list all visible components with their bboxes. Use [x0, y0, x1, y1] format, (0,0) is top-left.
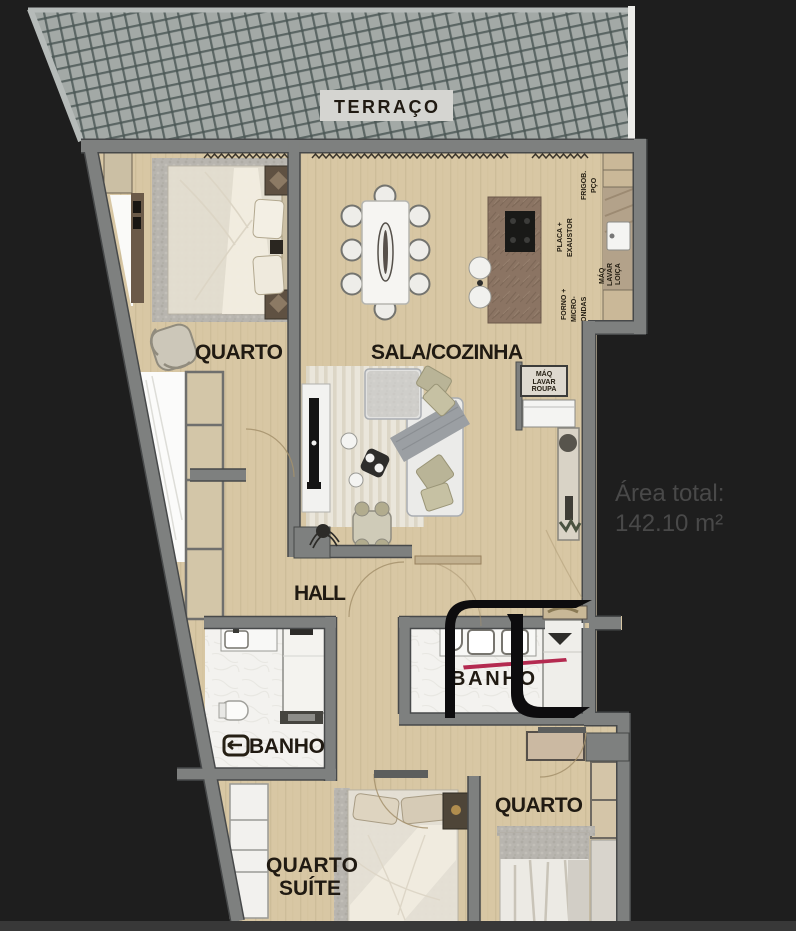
svg-text:MÁQ: MÁQ — [536, 369, 553, 378]
svg-text:ONDAS: ONDAS — [581, 296, 588, 322]
svg-text:FORNO +: FORNO + — [561, 289, 568, 320]
svg-text:ROUPA: ROUPA — [532, 386, 557, 393]
svg-text:LAVAR: LAVAR — [532, 379, 555, 386]
svg-text:MÁQ: MÁQ — [597, 267, 606, 284]
svg-text:QUARTO: QUARTO — [195, 341, 283, 364]
svg-text:LOIÇA: LOIÇA — [615, 263, 622, 285]
svg-text:QUARTO: QUARTO — [495, 794, 583, 817]
svg-text:MICRO-: MICRO- — [571, 296, 578, 322]
svg-text:LAVAR: LAVAR — [607, 263, 614, 286]
svg-text:SUÍTE: SUÍTE — [279, 877, 341, 900]
svg-text:SALA/COZINHA: SALA/COZINHA — [371, 341, 523, 364]
svg-text:FRIGOB.: FRIGOB. — [581, 171, 588, 200]
svg-text:BANHO: BANHO — [249, 735, 325, 758]
svg-text:QUARTO: QUARTO — [266, 854, 358, 877]
svg-text:PÇO: PÇO — [591, 177, 598, 193]
svg-text:142.10 m²: 142.10 m² — [615, 510, 723, 537]
svg-text:EXAUSTOR: EXAUSTOR — [567, 218, 574, 257]
svg-text:PLACA +: PLACA + — [557, 222, 564, 252]
svg-text:HALL: HALL — [294, 582, 346, 605]
svg-text:Área total:: Área total: — [615, 480, 724, 507]
